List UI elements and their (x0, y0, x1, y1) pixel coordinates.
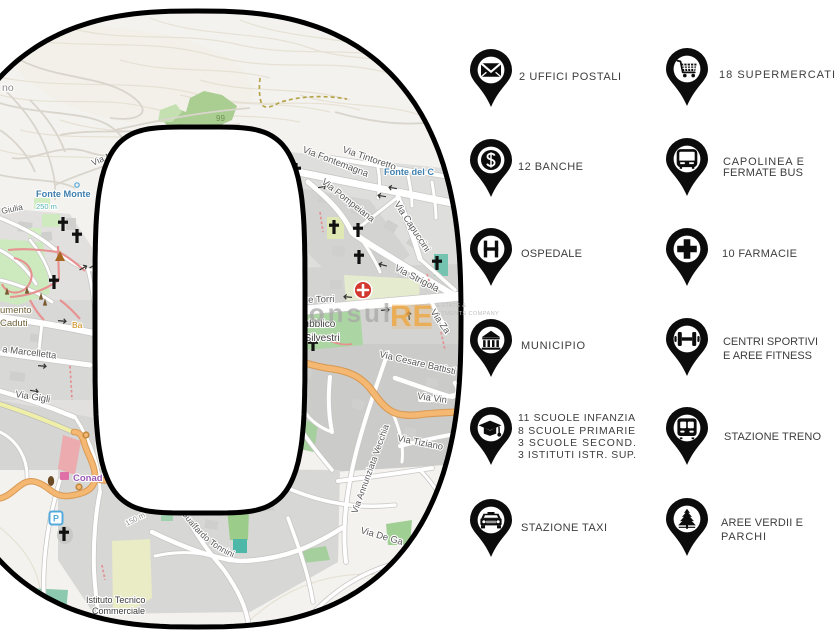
svg-text:Conad: Conad (73, 473, 103, 484)
svg-text:18 SUPERMERCATI: 18 SUPERMERCATI (719, 69, 835, 81)
svg-text:AREE VERDII E: AREE VERDII E (721, 517, 803, 529)
svg-text:RE: RE (390, 300, 434, 333)
svg-text:FERMATE BUS: FERMATE BUS (723, 167, 803, 179)
svg-text:3 ISTITUTI ISTR. SUP.: 3 ISTITUTI ISTR. SUP. (518, 450, 636, 461)
svg-text:MUNICIPIO: MUNICIPIO (521, 340, 585, 352)
svg-text:Fonte Monte: Fonte Monte (36, 189, 91, 199)
svg-text:Ba: Ba (72, 320, 83, 330)
svg-text:STAZIONE TRENO: STAZIONE TRENO (724, 431, 821, 443)
svg-text:no: no (2, 82, 14, 94)
svg-text:250 m: 250 m (36, 202, 57, 211)
svg-text:E AREE FITNESS: E AREE FITNESS (723, 350, 812, 362)
svg-text:Istituto Tecnico: Istituto Tecnico (86, 595, 145, 605)
svg-text:8 SCUOLE PRIMARIE: 8 SCUOLE PRIMARIE (518, 426, 635, 437)
svg-text:99: 99 (216, 114, 225, 123)
svg-text:P: P (53, 514, 59, 524)
svg-text:PARCHI: PARCHI (721, 531, 766, 543)
svg-text:3 SCUOLE SECOND.: 3 SCUOLE SECOND. (518, 438, 636, 449)
svg-text:10 FARMACIE: 10 FARMACIE (722, 248, 797, 260)
svg-text:STAZIONE TAXI: STAZIONE TAXI (521, 522, 607, 534)
svg-text:12 BANCHE: 12 BANCHE (518, 161, 583, 173)
svg-text:2 UFFICI POSTALI: 2 UFFICI POSTALI (519, 71, 621, 83)
svg-text:Caduti: Caduti (0, 318, 27, 329)
svg-text:11 SCUOLE INFANZIA: 11 SCUOLE INFANZIA (518, 413, 635, 424)
svg-text:STMENTS COMPANY: STMENTS COMPANY (437, 311, 499, 317)
svg-text:umento: umento (0, 305, 32, 316)
svg-text:Fonte del C: Fonte del C (384, 167, 434, 177)
svg-text:Commerciale: Commerciale (92, 606, 145, 616)
svg-text:ESTATE &: ESTATE & (437, 303, 466, 309)
svg-text:CENTRI SPORTIVI: CENTRI SPORTIVI (723, 336, 818, 348)
svg-text:OSPEDALE: OSPEDALE (521, 248, 582, 260)
